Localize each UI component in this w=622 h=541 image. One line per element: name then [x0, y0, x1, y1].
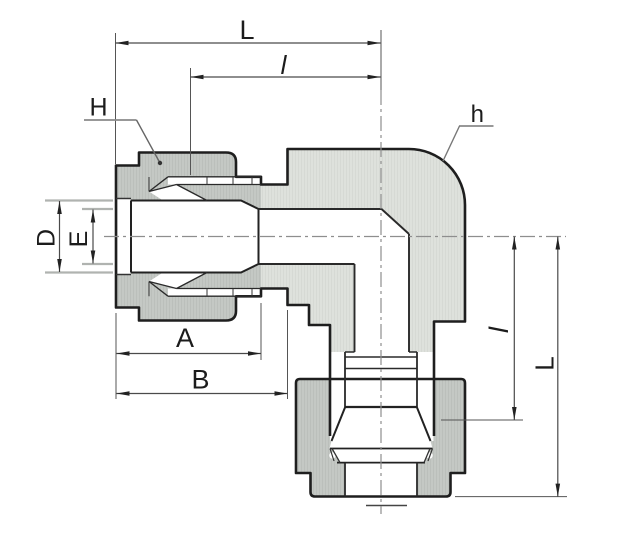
svg-text:l: l — [484, 326, 514, 333]
svg-text:h: h — [471, 101, 484, 128]
svg-text:A: A — [176, 323, 194, 353]
svg-text:E: E — [65, 231, 93, 248]
svg-text:L: L — [529, 356, 559, 370]
svg-text:H: H — [89, 94, 107, 122]
svg-text:D: D — [33, 229, 61, 247]
svg-text:L: L — [239, 15, 254, 45]
svg-text:B: B — [191, 365, 209, 395]
